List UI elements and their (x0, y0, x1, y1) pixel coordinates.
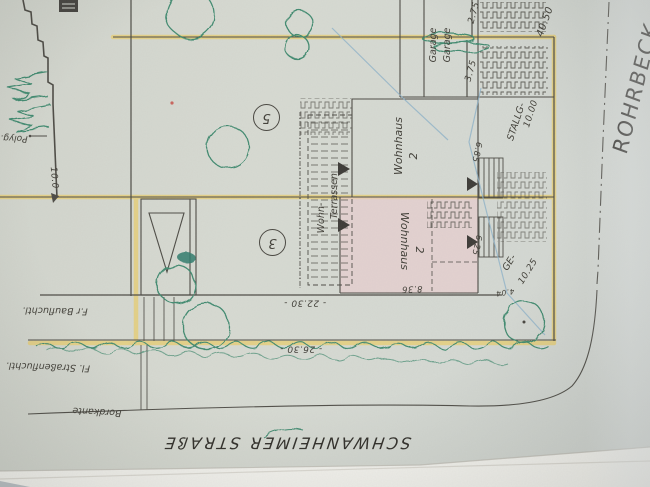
dim-front-building-line: - 22.30 - (284, 297, 326, 306)
label-wohn: Wohn- (317, 203, 327, 234)
label-bordkante: Bordkante (72, 405, 122, 418)
dim-street-frontage: - 26.30 - (280, 343, 322, 352)
scanned-site-plan-photo: Polyg. 10.0 5 3 Wohn- Terrassen Wohnhaus… (0, 0, 650, 487)
label-baufluchtlinie: F.r Baufluchtl. (22, 304, 88, 315)
parcel-number-5-text: 5 (262, 110, 270, 125)
street-name-schwanheimer: SCHWANHEIMER STRAßE (162, 434, 412, 451)
parcel-number-3-text: 3 (268, 235, 276, 250)
polygon-point-label: Polyg. (0, 132, 28, 142)
dim-house-width: 8.36 (401, 283, 422, 293)
label-terrassen: Terrassen (330, 173, 340, 219)
label-strassenfluchtlinie: Fl. Straßenfluchtl. (6, 360, 91, 373)
dim-left-boundary: 10.0 (47, 167, 58, 190)
dim-corner-offset: 4.04 (495, 287, 515, 297)
label-wohnhaus-upper-number: 2 (408, 153, 420, 160)
label-garage-right: Garage (443, 28, 453, 63)
label-wohnhaus-upper: Wohnhaus (393, 117, 405, 175)
parcel-number-5: 5 (253, 104, 280, 131)
label-garage-left: Garage (429, 28, 439, 63)
label-wohnhaus-lower: Wohnhaus (398, 212, 410, 270)
label-wohnhaus-lower-number: 2 (413, 247, 425, 254)
parcel-number-3: 3 (259, 229, 286, 256)
